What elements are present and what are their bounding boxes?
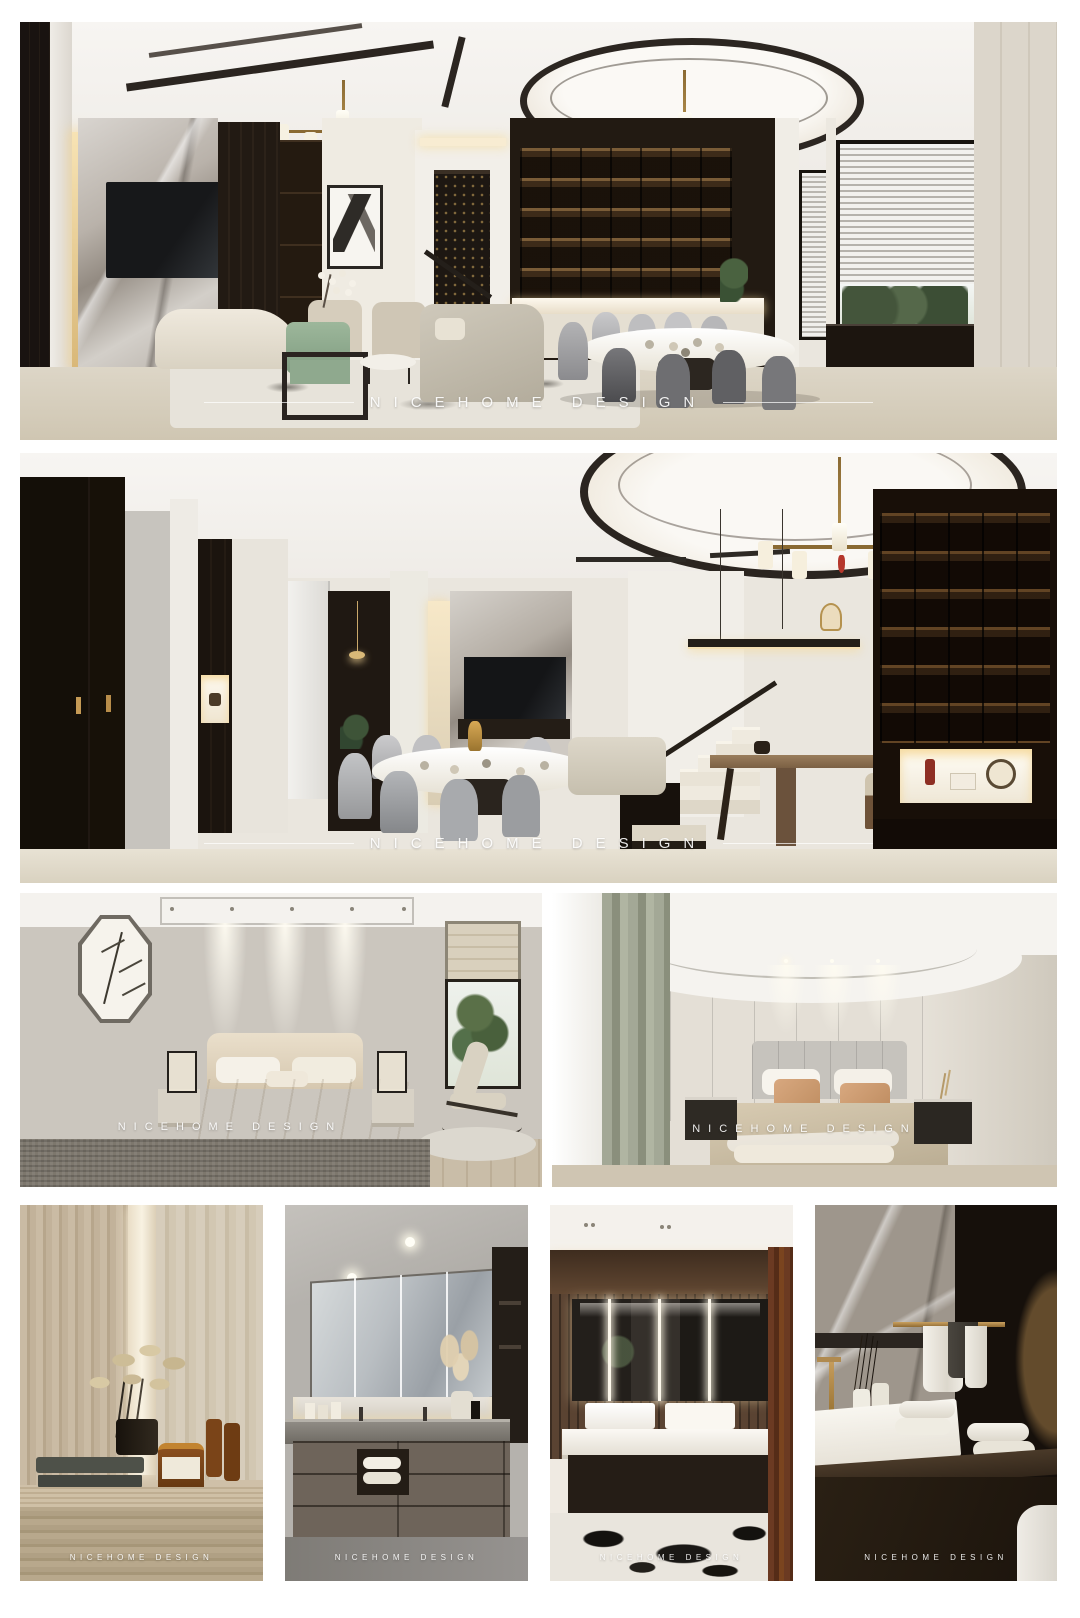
tv-screen bbox=[464, 657, 566, 719]
counter-top bbox=[20, 1487, 263, 1507]
watermark-line bbox=[204, 843, 354, 844]
dining-table-base bbox=[658, 358, 716, 390]
white-stool bbox=[1017, 1505, 1057, 1581]
tv-screen bbox=[106, 182, 224, 278]
under-cabinet bbox=[568, 1455, 770, 1513]
watermark-text: NICEHOME DESIGN bbox=[370, 835, 708, 852]
watermark: NICEHOME DESIGN bbox=[550, 1553, 793, 1562]
pendant-wire bbox=[720, 509, 721, 641]
wall-pillar bbox=[50, 22, 72, 414]
flower-vase bbox=[451, 1391, 473, 1421]
dining-chair-side bbox=[558, 322, 588, 380]
window-roman-shade bbox=[445, 921, 521, 985]
photo-travertine-detail: NICEHOME DESIGN bbox=[20, 1205, 263, 1581]
ac-vent bbox=[576, 557, 686, 562]
watermark-text: NICEHOME DESIGN bbox=[600, 1553, 744, 1562]
table-lamp bbox=[377, 1051, 407, 1093]
wall-pillar bbox=[775, 118, 799, 370]
round-rug bbox=[418, 1127, 536, 1161]
tableware bbox=[645, 340, 654, 349]
towel-niche bbox=[357, 1449, 409, 1495]
pendant-lamp bbox=[357, 601, 358, 653]
jar-label bbox=[162, 1457, 200, 1479]
grey-wall bbox=[125, 511, 170, 859]
rolled-towels bbox=[363, 1457, 401, 1469]
watermark: NICEHOME DESIGN bbox=[20, 1553, 263, 1562]
watermark-text: NICEHOME DESIGN bbox=[692, 1123, 917, 1135]
pendant-shade bbox=[349, 651, 365, 659]
spotlight-glow bbox=[814, 965, 854, 1035]
folded-towels bbox=[36, 1457, 144, 1473]
downlight-glow bbox=[405, 1237, 415, 1247]
spotlight-glow bbox=[263, 923, 307, 1048]
photo-bedroom-neutral: NICEHOME DESIGN bbox=[20, 893, 542, 1187]
watermark-line bbox=[204, 402, 354, 403]
niche-plate bbox=[986, 759, 1016, 789]
linear-pendant bbox=[688, 639, 860, 647]
pendant-light-line bbox=[688, 647, 860, 649]
shelf-grid bbox=[520, 148, 732, 298]
watermark: NICEHOME DESIGN bbox=[20, 835, 1057, 852]
watermark: NICEHOME DESIGN bbox=[20, 394, 1057, 411]
sofa-curved bbox=[155, 309, 300, 369]
entry-door-dark bbox=[20, 477, 125, 859]
teapot bbox=[754, 741, 770, 754]
sofa-pillow bbox=[435, 318, 465, 340]
wall-pillar bbox=[170, 499, 198, 859]
art-abstract bbox=[333, 194, 375, 252]
mirror-reflection-plant bbox=[598, 1331, 638, 1383]
door-lock bbox=[76, 697, 81, 714]
watermark-text: NICEHOME DESIGN bbox=[70, 1553, 214, 1562]
curtain-sage bbox=[602, 893, 670, 1187]
ceiling-vents bbox=[584, 1223, 588, 1227]
table-centerpiece-gold bbox=[468, 721, 482, 751]
photo-bathroom-double-sink: NICEHOME DESIGN bbox=[550, 1205, 793, 1581]
coffee-table-leg bbox=[368, 368, 370, 384]
tea-table-top bbox=[710, 755, 882, 768]
niche-figurine-red bbox=[925, 759, 935, 785]
rolled-towel bbox=[967, 1423, 1029, 1441]
watermark-line bbox=[723, 402, 873, 403]
spotlight-glow bbox=[862, 965, 902, 1035]
mirror-reflection-light bbox=[580, 1303, 760, 1317]
faucet bbox=[359, 1407, 363, 1421]
watermark: NICEHOME DESIGN bbox=[552, 1123, 1057, 1135]
downlight bbox=[170, 907, 174, 911]
ceiling bbox=[550, 1205, 793, 1250]
nightstand bbox=[914, 1099, 972, 1144]
watermark-text: NICEHOME DESIGN bbox=[335, 1553, 479, 1562]
octagon-art-canvas bbox=[82, 919, 148, 1019]
birdcage-decor bbox=[820, 603, 842, 631]
spotlight-glow bbox=[766, 965, 806, 1035]
watermark-text: NICEHOME DESIGN bbox=[864, 1553, 1008, 1562]
sofa-beige bbox=[568, 737, 666, 795]
window-narrow-blinds bbox=[799, 170, 829, 340]
window-blinds bbox=[836, 140, 982, 292]
watermark-text: NICEHOME DESIGN bbox=[370, 394, 708, 411]
basin bbox=[585, 1403, 655, 1429]
bed-sheet-fold bbox=[734, 1145, 894, 1163]
dried-plant-pods bbox=[78, 1333, 198, 1413]
chandelier-tassel bbox=[838, 555, 845, 573]
photo-bedroom-sage: NICEHOME DESIGN bbox=[552, 893, 1057, 1187]
plant-vase-black bbox=[116, 1419, 158, 1455]
mirror-light-strip bbox=[608, 1299, 611, 1401]
white-blossoms bbox=[318, 272, 325, 279]
floor bbox=[552, 1165, 1057, 1187]
watermark: NICEHOME DESIGN bbox=[815, 1553, 1057, 1562]
amber-bottle bbox=[206, 1419, 222, 1477]
counter-face bbox=[20, 1507, 263, 1581]
photo-bathroom-vanity: NICEHOME DESIGN bbox=[285, 1205, 528, 1581]
cream-wall bbox=[232, 539, 288, 833]
downlight bbox=[784, 959, 788, 963]
sheer-curtain bbox=[288, 581, 330, 799]
green-armchair-seat bbox=[290, 360, 350, 384]
watermark: NICEHOME DESIGN bbox=[60, 1121, 400, 1133]
niche-boxes bbox=[950, 773, 976, 790]
rolled-towel bbox=[899, 1401, 955, 1418]
right-cabinetry bbox=[974, 22, 1057, 418]
photo-dining-stair-hall: NICEHOME DESIGN bbox=[20, 453, 1057, 883]
mirror-ledge-dark bbox=[815, 1333, 923, 1348]
black-bottle bbox=[471, 1401, 480, 1421]
plant bbox=[720, 258, 748, 302]
spotlight-glow bbox=[203, 923, 247, 1048]
cabinet-shelf-items bbox=[499, 1301, 521, 1305]
ceiling-recess-line bbox=[647, 919, 977, 979]
spotlight-glow bbox=[323, 923, 367, 1048]
photo-living-dining: NICEHOME DESIGN bbox=[20, 22, 1057, 440]
side-cabinet-dark bbox=[492, 1247, 528, 1443]
dining-chair-front bbox=[380, 771, 418, 833]
niche-object bbox=[209, 693, 221, 706]
marble-floor bbox=[550, 1513, 793, 1581]
pendant-wire bbox=[782, 509, 783, 629]
shelf-grid bbox=[880, 513, 1050, 743]
ceiling-recess bbox=[160, 897, 414, 925]
wardrobe-dark bbox=[20, 22, 50, 414]
table-lamp bbox=[167, 1051, 197, 1093]
plant bbox=[340, 713, 372, 749]
towel-white-hanging bbox=[965, 1326, 987, 1388]
hallway-cove-light bbox=[420, 138, 506, 146]
tableware bbox=[420, 761, 429, 770]
watermark-line bbox=[723, 843, 873, 844]
watermark: NICEHOME DESIGN bbox=[285, 1553, 528, 1562]
window-greenery bbox=[842, 286, 968, 324]
floor bbox=[20, 849, 1057, 883]
chandelier-shade bbox=[832, 523, 847, 551]
dining-chair-side bbox=[338, 753, 372, 819]
watermark-text: NICEHOME DESIGN bbox=[118, 1121, 343, 1133]
gold-faucet-spout bbox=[817, 1357, 841, 1362]
cornice-brown bbox=[550, 1250, 793, 1297]
sheer-window bbox=[552, 893, 604, 1187]
photo-bathroom-towel-detail: NICEHOME DESIGN bbox=[815, 1205, 1057, 1581]
carpet bbox=[20, 1139, 430, 1187]
curtain-rust bbox=[768, 1247, 793, 1581]
dining-table-base bbox=[450, 779, 512, 815]
collage-canvas: NICEHOME DESIGN bbox=[0, 0, 1080, 1618]
